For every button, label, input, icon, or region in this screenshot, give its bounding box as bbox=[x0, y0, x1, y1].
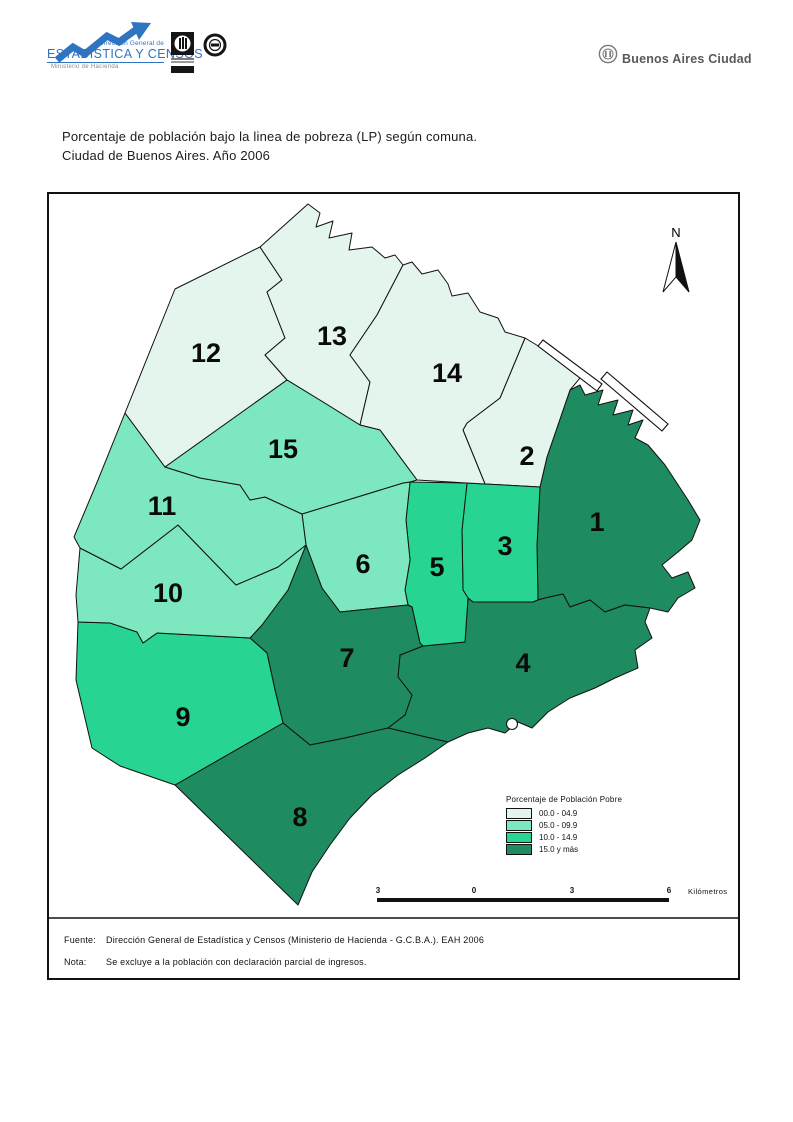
note-row: Nota:Se excluye a la población con decla… bbox=[64, 957, 724, 967]
north-arrow-left bbox=[663, 242, 676, 292]
scale-tick-2: 3 bbox=[570, 886, 574, 895]
north-arrow: N bbox=[663, 225, 689, 292]
scale-tick-3: 6 bbox=[667, 886, 671, 895]
note-text: Se excluye a la población con declaració… bbox=[106, 957, 367, 967]
legend-title: Porcentaje de Población Pobre bbox=[506, 795, 676, 804]
legend-item-3: 15.0 y más bbox=[506, 843, 676, 855]
legend-swatch bbox=[506, 808, 532, 819]
comuna-label-4: 4 bbox=[515, 648, 530, 678]
comuna-label-2: 2 bbox=[519, 441, 534, 471]
map-legend: Porcentaje de Población Pobre 00.0 - 04.… bbox=[506, 795, 676, 855]
comuna-label-7: 7 bbox=[339, 643, 354, 673]
scale-tick-1: 0 bbox=[472, 886, 476, 895]
legend-swatch bbox=[506, 844, 532, 855]
scale-bar: 3036 Kilómetros bbox=[374, 884, 744, 908]
note-label: Nota: bbox=[64, 957, 106, 967]
comuna-region-1 bbox=[537, 385, 700, 612]
comuna-label-15: 15 bbox=[268, 434, 298, 464]
comuna-label-5: 5 bbox=[429, 552, 444, 582]
comuna-label-1: 1 bbox=[589, 507, 604, 537]
legend-label: 05.0 - 09.9 bbox=[539, 821, 577, 830]
source-row: Fuente:Dirección General de Estadística … bbox=[64, 935, 724, 945]
legend-swatch bbox=[506, 820, 532, 831]
comuna-label-14: 14 bbox=[432, 358, 462, 388]
legend-label: 00.0 - 04.9 bbox=[539, 809, 577, 818]
legend-item-1: 05.0 - 09.9 bbox=[506, 819, 676, 831]
comuna-label-10: 10 bbox=[153, 578, 183, 608]
source-label: Fuente: bbox=[64, 935, 106, 945]
scale-rule bbox=[377, 898, 669, 902]
comuna-label-3: 3 bbox=[497, 531, 512, 561]
park-lake-ring bbox=[507, 719, 518, 730]
scale-unit-label: Kilómetros bbox=[688, 887, 727, 896]
comuna-label-6: 6 bbox=[355, 549, 370, 579]
legend-label: 10.0 - 14.9 bbox=[539, 833, 577, 842]
legend-item-2: 10.0 - 14.9 bbox=[506, 831, 676, 843]
comuna-label-9: 9 bbox=[175, 702, 190, 732]
comuna-label-13: 13 bbox=[317, 321, 347, 351]
source-text: Dirección General de Estadística y Censo… bbox=[106, 935, 484, 945]
comuna-label-8: 8 bbox=[292, 802, 307, 832]
page: Dirección General de ESTADÍSTICA Y CENSO… bbox=[0, 0, 793, 1122]
scale-tick-0: 3 bbox=[376, 886, 380, 895]
comuna-label-12: 12 bbox=[191, 338, 221, 368]
comuna-label-11: 11 bbox=[148, 491, 177, 521]
north-arrow-label: N bbox=[671, 225, 680, 240]
choropleth-map: 123456789101112131415 N bbox=[0, 0, 793, 1122]
legend-swatch bbox=[506, 832, 532, 843]
legend-label: 15.0 y más bbox=[539, 845, 578, 854]
legend-rows: 00.0 - 04.905.0 - 09.910.0 - 14.915.0 y … bbox=[506, 807, 676, 855]
legend-item-0: 00.0 - 04.9 bbox=[506, 807, 676, 819]
north-arrow-right bbox=[676, 242, 689, 292]
